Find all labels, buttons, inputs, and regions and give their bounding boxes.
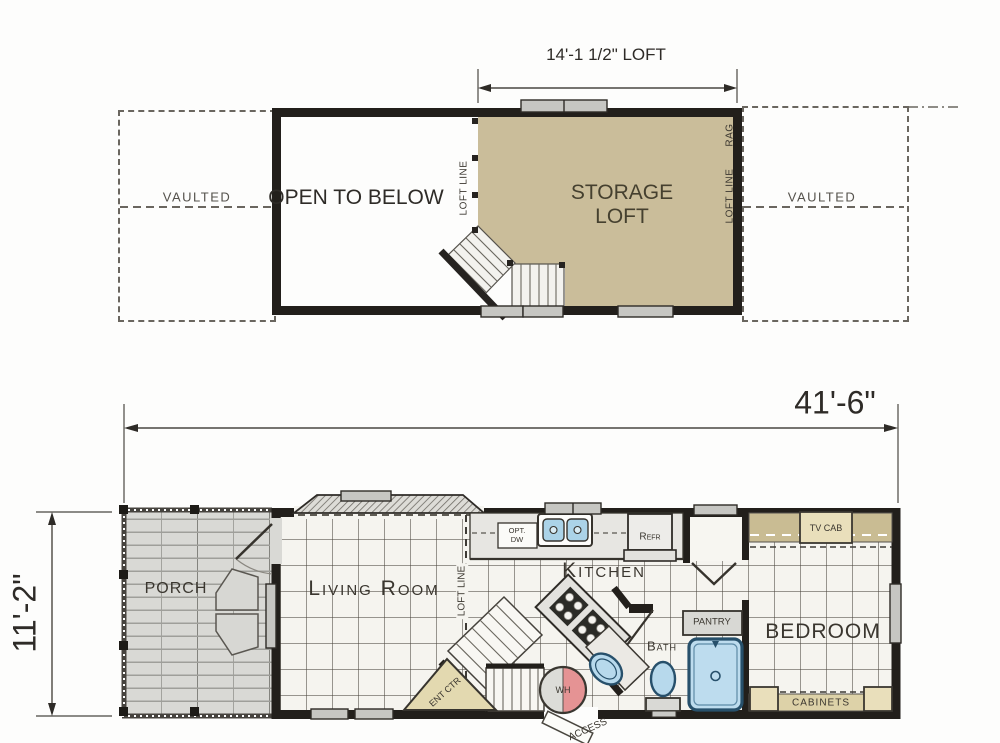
stairs-upper: [441, 118, 565, 318]
floorplan-sheet: 14'-1 1/2" LOFT VAULTED VAULTED OPEN TO …: [0, 0, 1000, 743]
loft-line-label-left: LOFT LINE: [458, 161, 470, 216]
closet-bifold: [690, 517, 742, 584]
open-to-below-label: OPEN TO BELOW: [268, 186, 443, 210]
room-label-porch: PORCH: [145, 580, 208, 598]
width-dimension: [124, 404, 898, 503]
width-dimension-label: 41'-6": [794, 385, 876, 422]
room-label-living-room: Living Room: [308, 577, 439, 601]
loft-dimension-label: 14'-1 1/2" LOFT: [546, 45, 666, 65]
loft-dimension: [478, 69, 737, 103]
bath-wall-stub: [614, 588, 629, 607]
kitchen-sink: [538, 514, 592, 546]
vaulted-label-left: VAULTED: [163, 191, 232, 206]
label-opt-dw-line1: OPT.: [509, 526, 526, 535]
room-label-bedroom: BEDROOM: [765, 620, 881, 644]
label-cabinets: CABINETS: [792, 697, 850, 709]
label-opt-dw-line2: DW: [511, 535, 524, 544]
storage-loft-label: STORAGE LOFT: [557, 181, 687, 229]
room-label-bath: Bath: [647, 640, 677, 655]
room-label-kitchen: Kitchen: [562, 559, 646, 583]
label-pantry: PANTRY: [693, 618, 731, 629]
loft-line-label-right: LOFT LINE: [724, 169, 736, 224]
label-tv-cab: TV CAB: [810, 523, 843, 533]
shower: [689, 639, 742, 710]
porch-chairs: [216, 569, 258, 655]
height-dimension: [36, 512, 112, 716]
loft-line-label-main: LOFT LINE: [456, 563, 468, 619]
label-wh: WH: [556, 685, 571, 695]
label-opt-dw: OPT. DW: [509, 526, 526, 544]
vaulted-label-right: VAULTED: [788, 191, 857, 206]
height-dimension-label: 11'-2": [7, 573, 44, 652]
rag-label: RAG: [724, 123, 736, 146]
entry-door: [236, 524, 272, 574]
toilet: [646, 662, 680, 717]
label-refr: Refr: [639, 531, 660, 543]
